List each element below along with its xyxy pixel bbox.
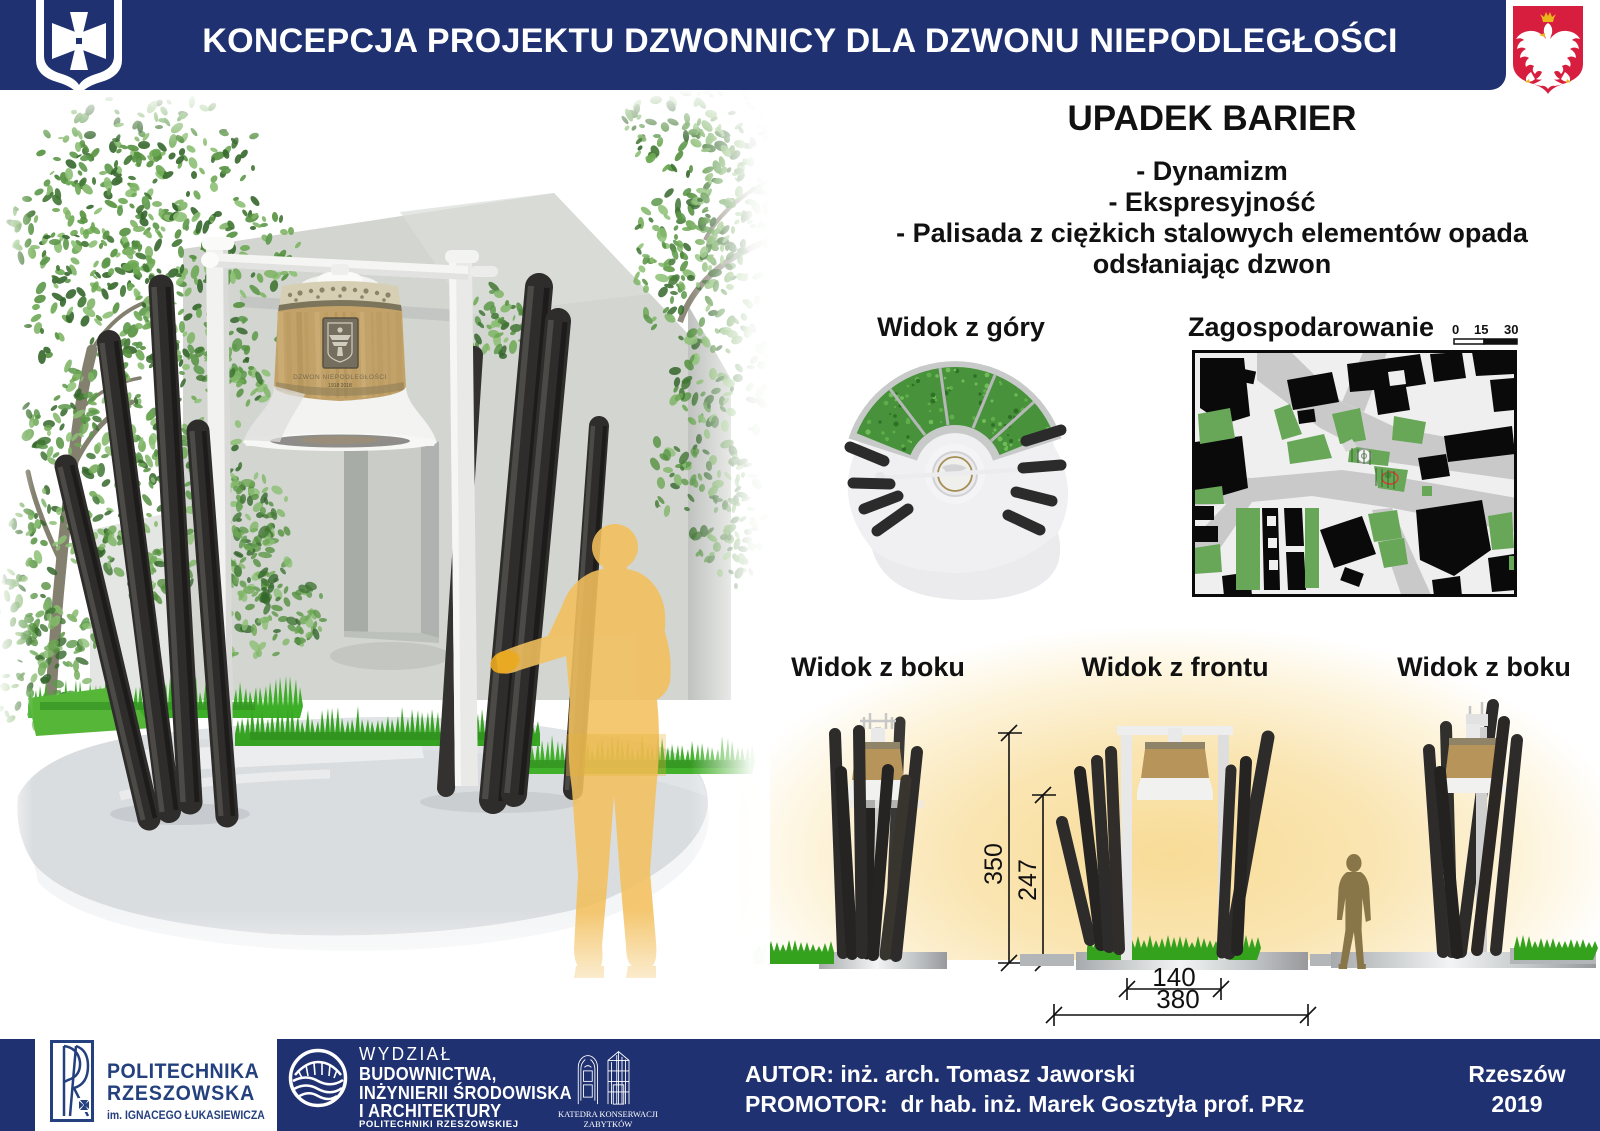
svg-text:30: 30 (1504, 322, 1518, 337)
svg-text:247: 247 (1014, 859, 1042, 901)
svg-text:0: 0 (1452, 322, 1459, 337)
svg-text:1918 2018: 1918 2018 (328, 383, 352, 389)
svg-text:380: 380 (1156, 984, 1199, 1014)
svg-text:15: 15 (1474, 322, 1488, 337)
svg-text:350: 350 (980, 843, 1008, 885)
svg-text:DZWON NIEPODLEGŁOŚCI: DZWON NIEPODLEGŁOŚCI (293, 372, 387, 381)
